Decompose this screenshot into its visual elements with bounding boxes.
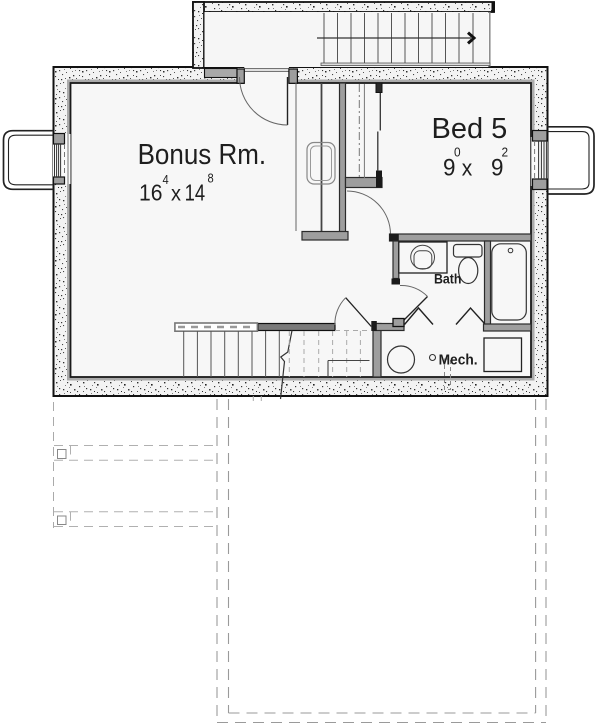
- svg-text:Bath: Bath: [434, 271, 462, 287]
- svg-text:2: 2: [502, 145, 509, 160]
- svg-text:Bonus Rm.: Bonus Rm.: [138, 139, 267, 171]
- svg-text:8: 8: [208, 171, 214, 186]
- svg-text:Bed 5: Bed 5: [432, 113, 508, 145]
- svg-text:0: 0: [454, 145, 461, 160]
- svg-text:x: x: [462, 156, 473, 181]
- svg-text:x: x: [171, 183, 181, 206]
- svg-text:4: 4: [163, 172, 169, 187]
- svg-text:14: 14: [185, 180, 206, 206]
- svg-text:16: 16: [139, 180, 163, 206]
- svg-text:Mech.: Mech.: [439, 352, 478, 369]
